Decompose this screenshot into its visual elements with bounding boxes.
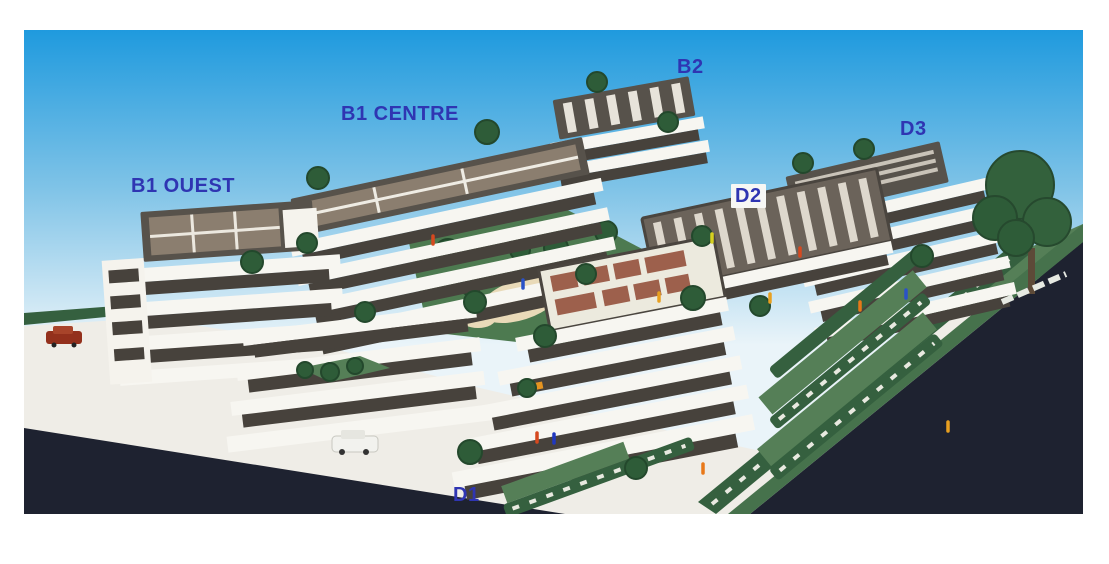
label-d1: D1 [453, 485, 480, 505]
label-b2: B2 [677, 57, 704, 77]
model-scene [24, 30, 1083, 514]
label-b1-ouest: B1 OUEST [131, 176, 235, 196]
page: { "meta": { "description": "Photograph o… [0, 0, 1109, 564]
label-d2: D2 [731, 184, 766, 208]
label-b1-centre: B1 CENTRE [341, 104, 459, 124]
label-d3: D3 [900, 119, 927, 139]
model-photo: B1 OUEST B1 CENTRE B2 D3 D2 D1 [24, 30, 1083, 514]
